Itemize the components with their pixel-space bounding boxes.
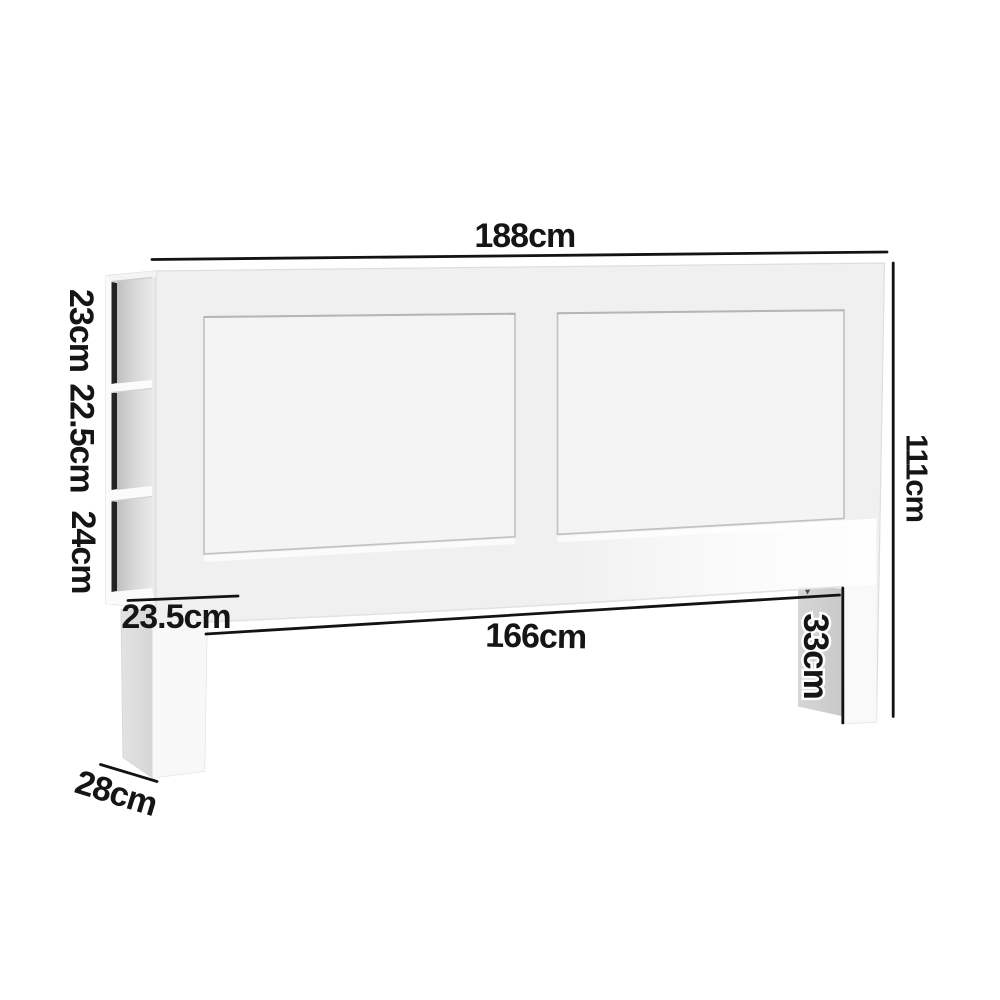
svg-text:22.5cm: 22.5cm bbox=[63, 383, 101, 492]
svg-text:33cm: 33cm bbox=[796, 613, 835, 699]
svg-text:24cm: 24cm bbox=[64, 511, 102, 594]
svg-text:23.5cm: 23.5cm bbox=[121, 598, 230, 636]
svg-text:166cm: 166cm bbox=[485, 617, 587, 657]
svg-text:23cm: 23cm bbox=[62, 289, 100, 372]
svg-text:111cm: 111cm bbox=[900, 434, 935, 522]
svg-text:188cm: 188cm bbox=[474, 217, 575, 255]
